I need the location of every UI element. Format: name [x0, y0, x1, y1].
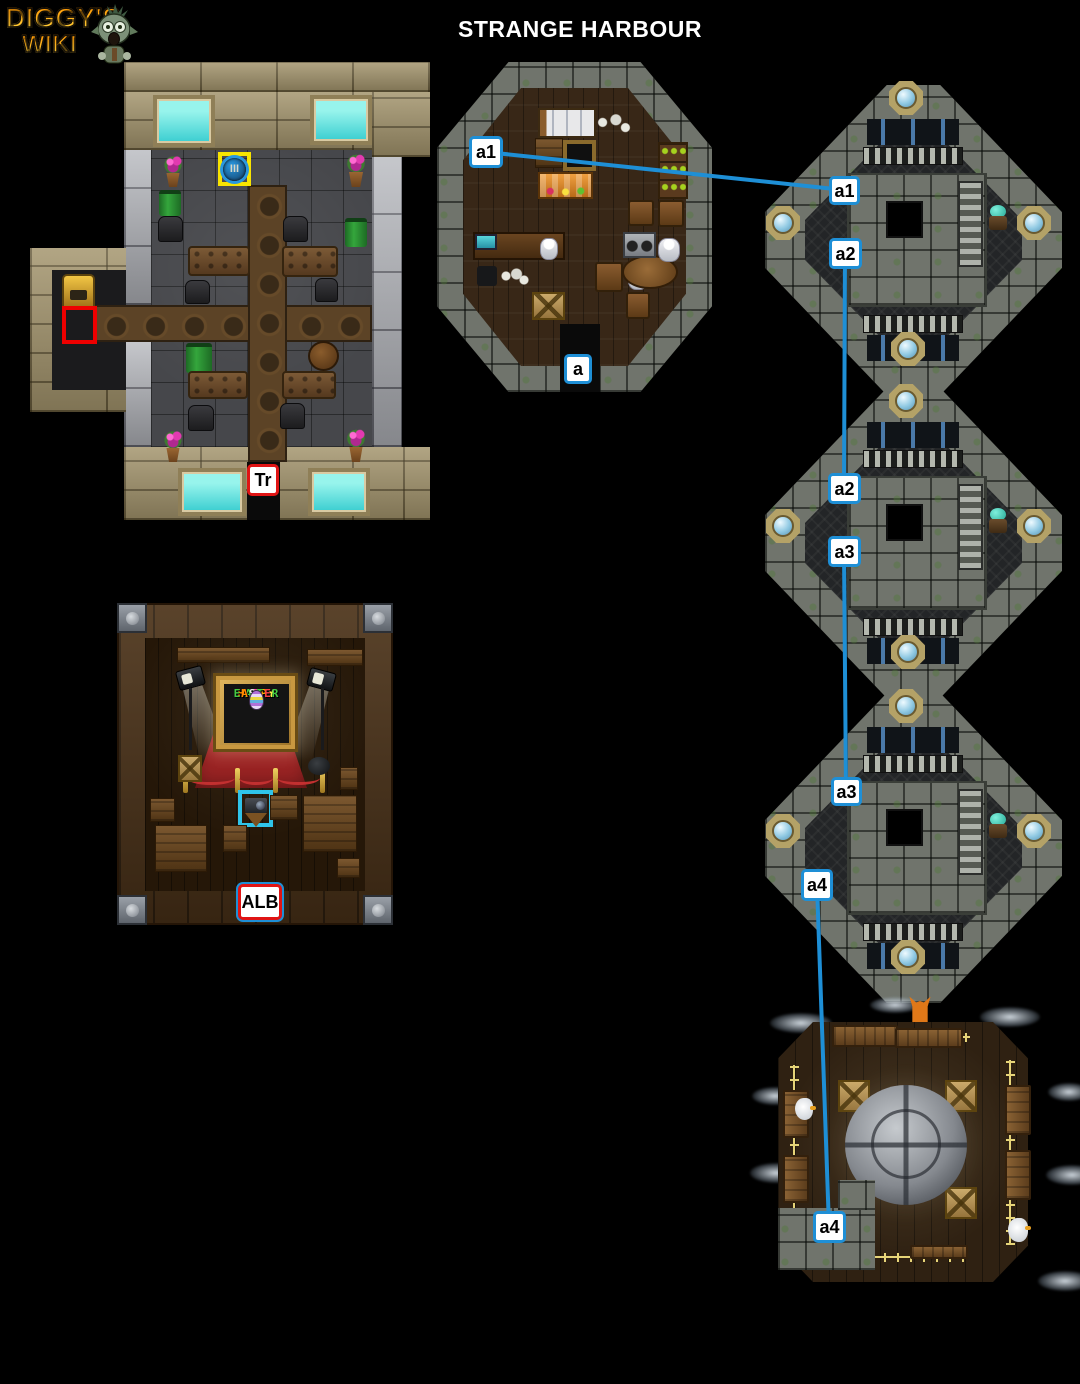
flower-pot: [341, 428, 371, 462]
office-chair: [188, 405, 214, 431]
porthole-glass: [895, 87, 917, 109]
seagull: [795, 1098, 813, 1120]
tavern-room-map: [437, 62, 712, 392]
office-chair: [283, 216, 308, 242]
portal-label-a2: a2: [828, 473, 861, 504]
gallery-bench: [155, 825, 207, 872]
laptop-screen: [475, 234, 497, 250]
pipes: [867, 119, 959, 145]
rope-post: [273, 768, 278, 793]
seagull: [1008, 1218, 1028, 1242]
corner-screw-plate: [117, 603, 147, 633]
astronaut-toy: [658, 238, 680, 262]
porthole-glass: [772, 212, 794, 234]
dome-inner-ring: [871, 1109, 941, 1179]
stove: [477, 266, 497, 286]
porthole-glass: [1023, 212, 1045, 234]
mascot-icon: [90, 4, 140, 68]
gallery-room-map: HAPPY EASTER: [117, 603, 393, 925]
portal-label-alb: ALB: [238, 884, 282, 920]
porthole-glass: [895, 695, 917, 717]
camera-tripod: [245, 813, 267, 827]
gallery-bench: [303, 795, 357, 852]
portal-label-a4: a4: [813, 1211, 846, 1243]
portal-label-a1: a1: [829, 176, 860, 205]
mugs: [540, 238, 558, 260]
easter-egg-icon: [249, 690, 264, 710]
pipes: [867, 422, 959, 448]
floor-grate: [863, 923, 963, 941]
gallery-stool: [340, 767, 358, 790]
puzzle-room-map-1: [765, 85, 1062, 395]
camera-highlight-box: [238, 790, 273, 827]
floor-grate: [863, 755, 963, 773]
tavern-chair: [628, 200, 654, 226]
black-drum: [308, 757, 330, 775]
trash-bin: [345, 218, 367, 247]
floor-grate: [863, 315, 963, 333]
flower-pot: [340, 153, 372, 187]
office-left-wall: [124, 342, 151, 447]
pipes: [867, 727, 959, 753]
idol-highlight-box: [62, 306, 97, 344]
office-top-right-wall: [372, 92, 430, 157]
bed: [538, 108, 596, 138]
center-pit: [888, 506, 921, 539]
trash-bin: [159, 190, 181, 216]
golden-idol: [62, 274, 95, 308]
porthole-glass: [897, 338, 919, 360]
stairs: [958, 181, 983, 267]
flower-pot: [158, 155, 188, 187]
porthole-glass: [1023, 820, 1045, 842]
framed-board: [563, 140, 596, 171]
bottle-shelf: [658, 142, 688, 199]
page-canvas: DIGGY'S WIKI STRANGE HARBOUR: [0, 0, 1080, 1384]
deck-shelf: [1005, 1085, 1031, 1135]
carpet-path-horizontal: [95, 305, 372, 342]
portal-label-a3: a3: [831, 777, 862, 806]
deck-bench: [832, 1025, 898, 1047]
office-left-wall: [124, 150, 151, 305]
coin-cell: III: [218, 152, 251, 186]
window: [153, 95, 215, 147]
couch: [188, 371, 248, 399]
pixel-letter: R: [272, 687, 280, 700]
couch: [282, 246, 338, 277]
trash-bin: [186, 343, 212, 373]
diver-figure: [988, 813, 1008, 840]
window: [308, 468, 370, 516]
tavern-chair: [658, 200, 684, 227]
window: [310, 95, 372, 145]
office-chair: [315, 278, 338, 302]
portal-label-tr: Tr: [247, 464, 279, 496]
gallery-chair: [223, 825, 247, 852]
diver-figure: [988, 508, 1008, 535]
office-chair: [185, 280, 210, 304]
pixel-letter: E: [264, 687, 272, 700]
wall-shelf: [535, 138, 563, 168]
office-room-map: 2FIII: [30, 60, 430, 520]
flower-pot: [158, 430, 188, 462]
floor-grate: [863, 147, 963, 165]
gallery-chair: [150, 798, 175, 822]
center-pit: [888, 203, 921, 236]
logo-line2: WIKI: [22, 34, 77, 57]
wooden-crate: [532, 292, 565, 320]
portal-label-a: a: [564, 354, 592, 384]
deck-shelf: [783, 1155, 809, 1203]
cloud: [1048, 1083, 1080, 1101]
easter-picture: HAPPY EASTER: [224, 684, 289, 743]
portal-label-a2: a2: [829, 238, 862, 269]
floor-grate: [863, 618, 963, 636]
floor-grate: [863, 450, 963, 468]
portal-label-a1: a1: [469, 136, 503, 168]
cloud: [1046, 1165, 1080, 1185]
corner-screw-plate: [117, 895, 147, 925]
office-right-wall: [372, 157, 402, 447]
stairs: [958, 484, 983, 570]
portal-label-a4: a4: [801, 869, 833, 901]
porthole-glass: [895, 390, 917, 412]
deck-bench: [910, 1245, 968, 1259]
ceiling-beam: [307, 649, 363, 666]
porthole-glass: [897, 946, 919, 968]
deck-bench: [895, 1028, 963, 1048]
site-logo[interactable]: DIGGY'S WIKI: [6, 4, 136, 66]
window: [178, 468, 246, 516]
cloud: [1038, 1271, 1080, 1291]
porthole-glass: [897, 641, 919, 663]
tavern-chair: [626, 292, 650, 319]
bone-pile: [500, 268, 530, 288]
picture-frame: HAPPY EASTER: [213, 673, 298, 752]
boombox: [623, 232, 656, 258]
diver-figure: [988, 205, 1008, 232]
office-top-wall: [124, 62, 430, 92]
couch: [282, 371, 336, 399]
center-pit: [888, 811, 921, 844]
office-chair: [158, 216, 183, 242]
food-stand: [538, 172, 593, 199]
spotlight-stand: [189, 688, 192, 750]
porthole-glass: [772, 515, 794, 537]
stairs: [958, 789, 983, 875]
stone-corner: [838, 1180, 875, 1210]
blue-coin-icon: III: [223, 158, 246, 181]
page-title: STRANGE HARBOUR: [420, 16, 740, 43]
puzzle-room-map-3: [765, 693, 1062, 1003]
spotlight-stand: [321, 688, 324, 750]
ceiling-beam: [177, 647, 270, 663]
deck-crate: [945, 1187, 977, 1219]
war-drum: [308, 341, 339, 371]
camera-icon: [245, 798, 267, 813]
skull-and-bones: [595, 112, 633, 138]
portal-label-a3: a3: [828, 536, 861, 567]
pixel-letter: A: [241, 687, 249, 700]
puzzle-room-map-2: [765, 388, 1062, 698]
office-chair: [280, 403, 305, 429]
deck-shelf: [1005, 1150, 1031, 1200]
corner-screw-plate: [363, 895, 393, 925]
gallery-chair: [337, 858, 360, 878]
couch: [188, 246, 250, 276]
ship-deck-map: [750, 995, 1080, 1340]
gallery-chair: [270, 795, 298, 820]
tavern-table: [595, 262, 623, 292]
cardboard-box: [178, 755, 202, 782]
porthole-glass: [772, 820, 794, 842]
corner-screw-plate: [363, 603, 393, 633]
rope-barrier: [239, 771, 273, 785]
porthole-glass: [1023, 515, 1045, 537]
office-bottom-wall: [403, 447, 430, 520]
